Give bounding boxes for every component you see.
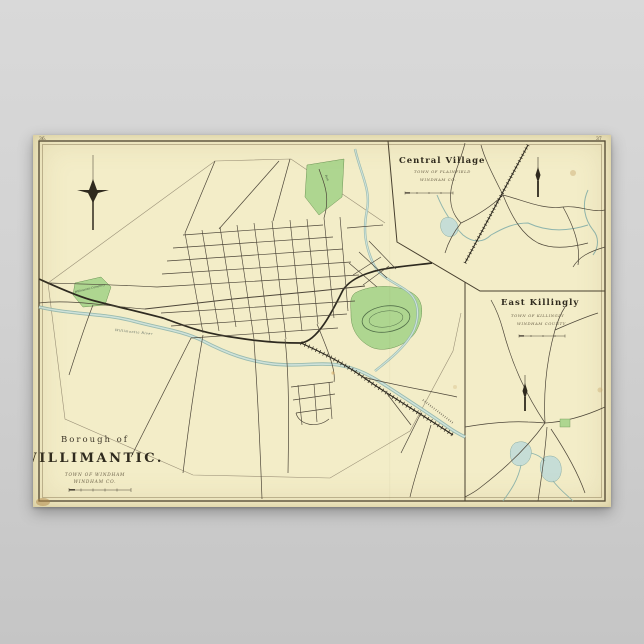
east-killingly-green-patch	[560, 419, 570, 427]
central-village-subtitle1: TOWN OF PLAINFIELD	[414, 169, 471, 174]
main-map: Park Willimantic Cemetery	[33, 149, 465, 499]
central-village-pond	[441, 217, 459, 236]
east-killingly-scale-bar	[519, 335, 565, 338]
map-poster: 36. 37 Pa	[33, 135, 611, 507]
central-village-title: Central Village	[399, 156, 485, 166]
east-killingly-roads	[465, 300, 605, 501]
product-photo-background: 36. 37 Pa	[0, 0, 644, 644]
east-killingly-compass-icon	[523, 375, 528, 411]
main-scale-bar	[69, 488, 131, 492]
east-killingly-water	[503, 442, 573, 501]
central-village-streams	[437, 190, 598, 255]
main-title-line1: Borough of	[61, 435, 129, 445]
map-svg: 36. 37 Pa	[33, 135, 611, 507]
main-subtitle-line1: TOWN OF WINDHAM	[65, 473, 125, 478]
inset-central-village: Central Village TOWN OF PLAINFIELD WINDH…	[399, 143, 605, 267]
main-title-line2: WILLIMANTIC.	[33, 451, 164, 466]
east-killingly-subtitle1: TOWN OF KILLINGLY	[511, 313, 564, 318]
main-subtitle-line2: WINDHAM CO.	[74, 480, 117, 485]
main-title-block: Borough of WILLIMANTIC. TOWN OF WINDHAM …	[33, 435, 164, 485]
river-label: Willimantic River	[115, 328, 153, 336]
east-killingly-subtitle2: WINDHAM COUNTY.	[517, 321, 567, 326]
east-killingly-title: East Killingly	[501, 298, 579, 308]
park-area: Park	[305, 159, 344, 215]
inset-east-killingly: East Killingly TOWN OF KILLINGLY WINDHAM…	[465, 298, 605, 501]
central-village-scale-bar	[405, 192, 453, 195]
central-village-subtitle2: WINDHAM CO.	[420, 177, 457, 182]
compass-rose-icon	[77, 155, 109, 230]
central-village-compass-icon	[536, 157, 541, 197]
